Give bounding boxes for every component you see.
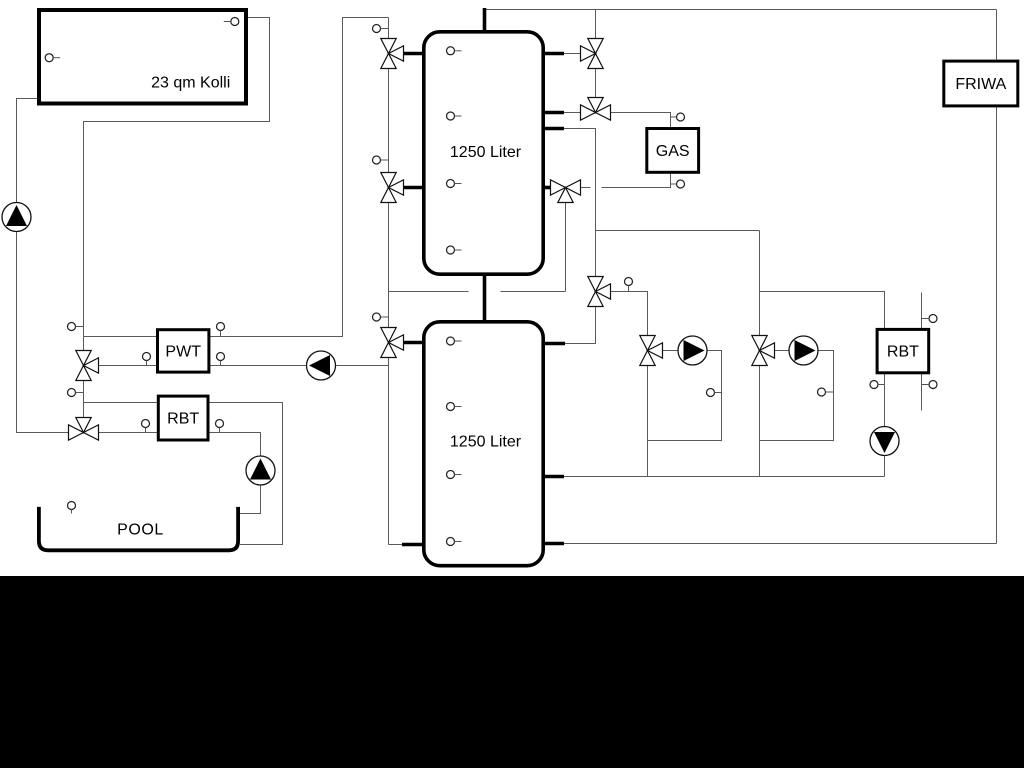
svg-text:1250 Liter: 1250 Liter — [450, 144, 522, 161]
svg-text:23 qm Kolli: 23 qm Kolli — [151, 75, 230, 92]
svg-text:RBT: RBT — [887, 344, 919, 361]
svg-text:GAS: GAS — [656, 143, 690, 160]
svg-text:RBT: RBT — [167, 411, 199, 428]
svg-text:POOL: POOL — [117, 522, 164, 539]
svg-text:PWT: PWT — [165, 343, 201, 360]
svg-text:FRIWA: FRIWA — [955, 76, 1006, 93]
svg-text:1250 Liter: 1250 Liter — [450, 434, 522, 451]
